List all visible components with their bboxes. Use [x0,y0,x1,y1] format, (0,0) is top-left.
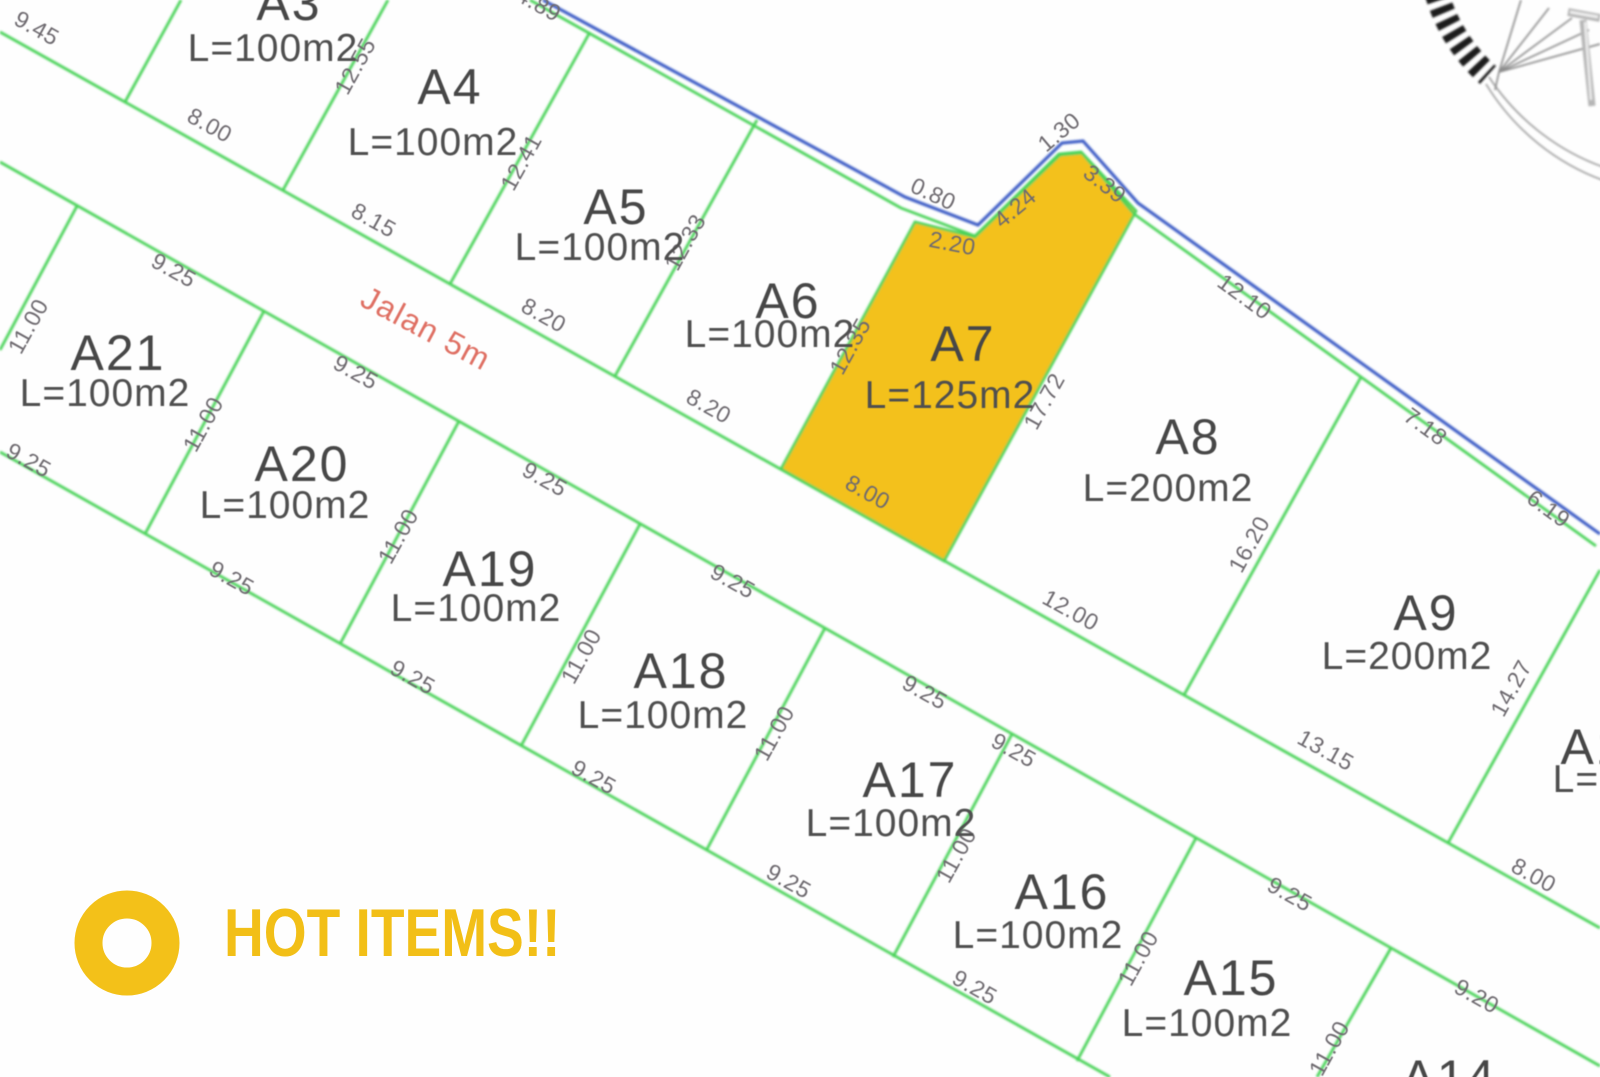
svg-text:L=100m2: L=100m2 [348,121,519,164]
svg-text:A8: A8 [1155,409,1220,465]
svg-text:HOT ITEMS!!: HOT ITEMS!! [224,896,560,972]
svg-text:L=100m2: L=100m2 [20,372,191,415]
svg-text:L=100m2: L=100m2 [188,27,359,70]
svg-text:A15: A15 [1184,950,1279,1006]
svg-text:L=100m2: L=100m2 [578,694,749,737]
svg-text:A9: A9 [1393,585,1458,641]
svg-text:L=100m2: L=100m2 [391,587,562,630]
svg-text:L=125m2: L=125m2 [865,374,1036,417]
svg-text:A14: A14 [1402,1050,1497,1077]
svg-text:A7: A7 [930,316,995,372]
svg-text:L=100m2: L=100m2 [685,313,856,356]
svg-text:L=100m2: L=100m2 [953,914,1124,957]
svg-text:A16: A16 [1015,864,1110,920]
svg-text:A17: A17 [863,752,958,808]
svg-text:A4: A4 [417,59,482,115]
svg-text:L=100m2: L=100m2 [1122,1002,1293,1045]
svg-text:L=100m2: L=100m2 [200,484,371,527]
svg-text:L=100m2: L=100m2 [806,802,977,845]
svg-text:L=150m2: L=150m2 [1553,758,1600,801]
svg-text:L=200m2: L=200m2 [1083,467,1254,510]
svg-text:A18: A18 [634,643,729,699]
svg-text:L=200m2: L=200m2 [1322,635,1493,678]
svg-text:L=100m2: L=100m2 [515,226,686,269]
